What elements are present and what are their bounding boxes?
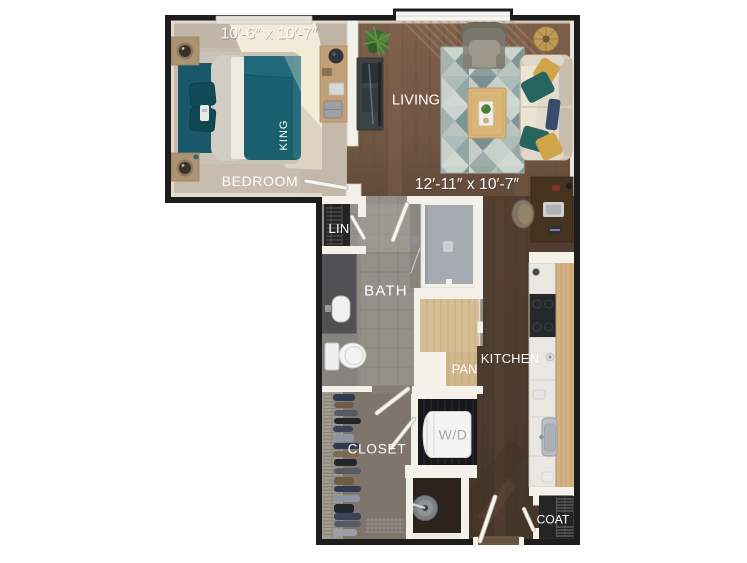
svg-text:W/D: W/D [439,427,468,443]
svg-text:LIN: LIN [328,221,349,236]
svg-text:KING: KING [278,120,290,151]
svg-text:12′-11″ x 10′-7″: 12′-11″ x 10′-7″ [415,176,520,193]
svg-text:KITCHEN: KITCHEN [481,351,539,366]
svg-text:CLOSET: CLOSET [348,442,407,457]
svg-text:BATH: BATH [364,283,408,300]
svg-text:COAT: COAT [537,513,570,527]
svg-text:LIVING: LIVING [392,93,440,109]
svg-text:10′-6″ x 10′-7″: 10′-6″ x 10′-7″ [221,26,318,43]
svg-text:PAN: PAN [452,362,478,377]
svg-text:BEDROOM: BEDROOM [222,173,299,189]
